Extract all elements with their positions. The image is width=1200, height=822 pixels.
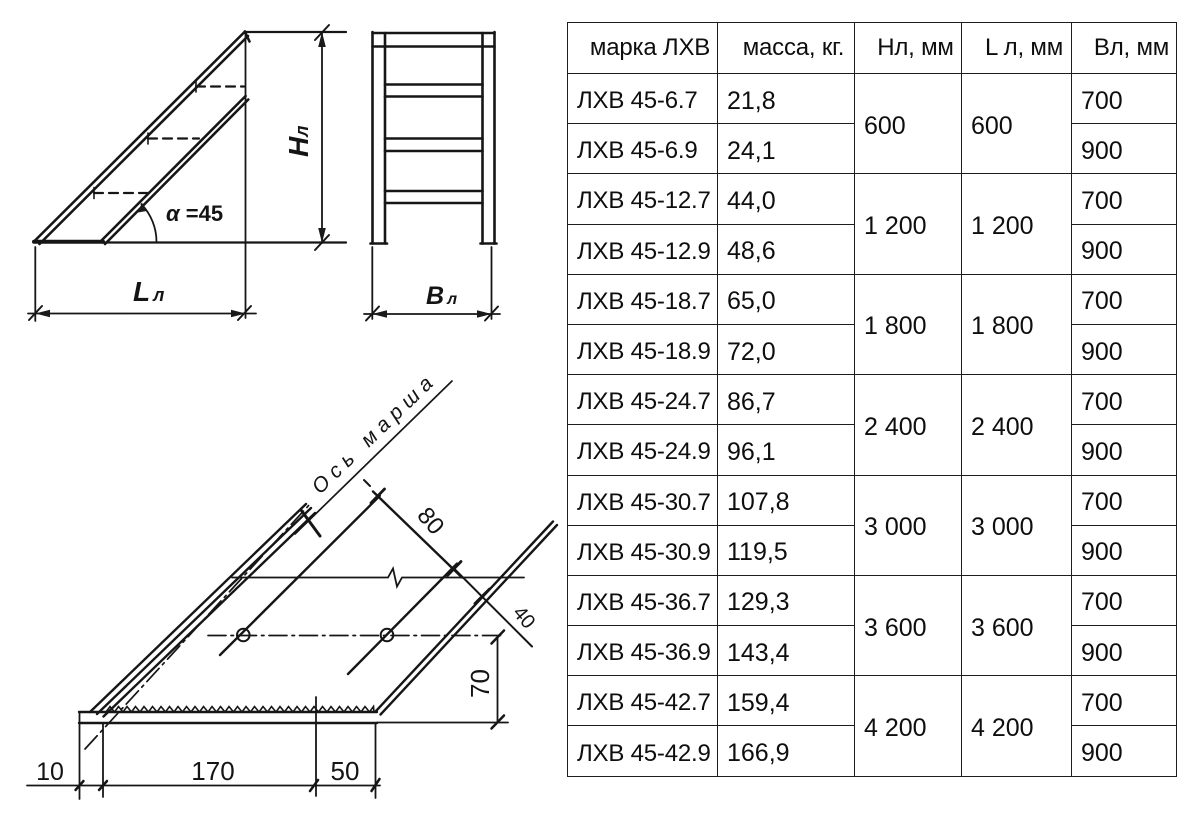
svg-text:10: 10 — [36, 758, 64, 786]
svg-text:α =45: α =45 — [166, 201, 223, 226]
svg-text:Bл: Bл — [426, 282, 457, 310]
svg-text:Lл: Lл — [133, 276, 164, 307]
svg-text:50: 50 — [331, 756, 360, 786]
svg-text:170: 170 — [191, 756, 234, 786]
svg-text:Hл: Hл — [283, 126, 314, 157]
svg-text:Ось марша: Ось марша — [307, 368, 441, 499]
svg-text:70: 70 — [465, 669, 495, 698]
